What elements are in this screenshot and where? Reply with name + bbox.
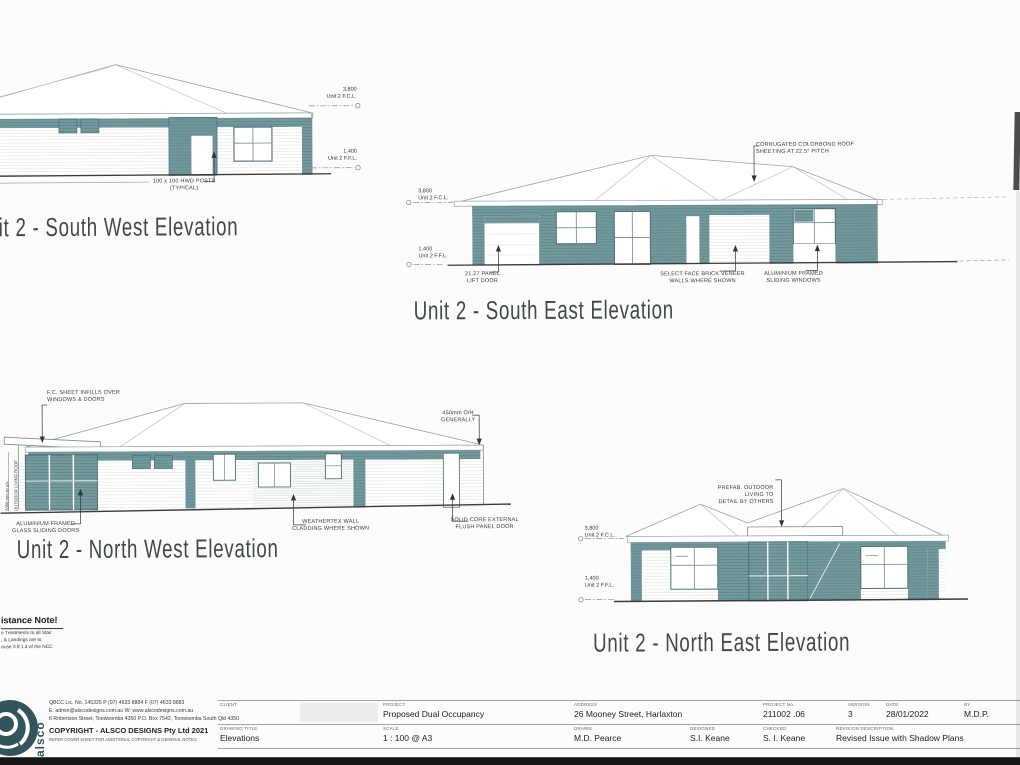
ne-ffl-level: 1,400 Unit 2 F.F.L. [585, 576, 614, 590]
slip-resistance-note: istance Note! e Treatments to all Stair … [0, 0, 1018, 2]
tb-designed-label: DESIGNED [690, 726, 715, 731]
nw-note-overhang: 450mm O/H GENERALLY [441, 410, 475, 424]
ne-note-prefab: PREFAB. OUTDOOR LIVING TO DETAIL BY OTHE… [698, 485, 773, 507]
se-note-brick: SELECT FACE BRICK VENEER WALLS WHERE SHO… [660, 271, 745, 286]
tb-revision-value: Revised Issue with Shadow Plans [836, 733, 964, 743]
title-block-mid-rule [218, 724, 1020, 725]
alsco-brand-text: alsco [33, 721, 47, 757]
tb-date-value: 28/01/2022 [886, 709, 929, 719]
tb-project-no-value: 211002 .06 [763, 709, 805, 719]
tb-version-value: 3 [848, 709, 853, 719]
slip-note-heading: istance Note! [1, 615, 58, 625]
logo-copyright: COPYRIGHT - ALSCO DESIGNS Pty Ltd 2021 [49, 726, 208, 735]
title-block-top-rule [218, 700, 1020, 701]
tb-drawn-value: M.D. Pearce [574, 733, 621, 743]
tb-date-label: DATE [886, 702, 898, 707]
sw-fcl-level: 3,800 Unit 2 F.C.L. [311, 87, 357, 101]
scan-edge-right [1013, 112, 1020, 190]
client-cell-shading [300, 703, 378, 722]
scan-edge-bottom [0, 757, 1020, 765]
se-ffl-level: 1,400 Unit 2 F.F.L. [418, 246, 447, 260]
se-note-roof: CORRUGATED COLORBOND ROOF SHEETING AT 22… [756, 141, 854, 156]
se-note-windows: ALUMINIUM FRAMED SLIDING WINDOWS [764, 271, 823, 286]
nw-dim-height: 2060 mm to u/s [4, 482, 9, 512]
tb-scale-label: SCALE [383, 726, 399, 731]
slip-note-line1: e Treatments to all Stair [1, 631, 52, 636]
scan-shadow-right [1016, 190, 1020, 757]
tb-checked-value: S. I. Keane [763, 733, 805, 743]
tb-project-no-label: PROJECT No. [763, 702, 794, 707]
se-note-lift-door: 21.27 PANEL LIFT DOOR [465, 271, 500, 285]
logo-copyright-note: REFER COVER SHEET FOR ADDITIONAL COPYRIG… [49, 737, 197, 742]
nw-note-infills: F.C. SHEET INFILLS OVER WINDOWS & DOORS [47, 390, 120, 405]
ne-fcl-level: 3,800 Unit 2 F.C.L. [585, 526, 615, 540]
nw-dim-label: OUTDOOR LIVING ROOF [13, 460, 18, 511]
tb-address-label: ADDRESS [574, 702, 597, 707]
tb-project-value: Proposed Dual Occupancy [383, 709, 484, 719]
logo-contact-line3: 6 Robertson Street, Toowoomba 4350 P.O. … [49, 716, 239, 722]
tb-scale-value: 1 : 100 @ A3 [383, 733, 432, 743]
tb-drawing-title-value: Elevations [220, 733, 259, 743]
nw-note-cladding: WEATHERTEX WALL CLADDING WHERE SHOWN [292, 519, 369, 534]
tb-checked-label: CHECKED [763, 726, 786, 731]
tb-client-label: CLIENT [220, 702, 237, 707]
slip-note-line3: ause 3.9.1.4 of the NCC [1, 645, 52, 650]
tb-project-label: PROJECT [383, 702, 405, 707]
tb-by-value: M.D.P. [964, 709, 989, 719]
slip-note-rule [1, 628, 63, 629]
sw-elevation-title: Unit 2 - South West Elevation [0, 211, 238, 243]
se-fcl-level: 3,800 Unit 2 F.C.L. [418, 188, 448, 202]
nw-note-panel-door: SOLID CORE EXTERNAL FLUSH PANEL DOOR [450, 517, 518, 532]
tb-by-label: BY [964, 702, 970, 707]
nw-elevation-title: Unit 2 - North West Elevation [17, 533, 279, 565]
ne-elevation-title: Unit 2 - North East Elevation [593, 627, 850, 659]
tb-address-value: 26 Mooney Street, Harlaxton [574, 709, 682, 719]
logo-contact-line1: QBCC Lic. No. 145325 P (07) 4633 8884 F … [49, 700, 184, 706]
title-block-bottom-rule [218, 748, 1020, 749]
drawing-sheet: 3,800 Unit 2 F.C.L. 1,400 Unit 2 F.F.L. … [0, 0, 1020, 765]
tb-drawing-title-label: DRAWING TITLE [220, 726, 258, 731]
tb-revision-label: REVISION DESCRIPTION [836, 726, 894, 731]
sw-note-posts: 100 x 100 HWD POSTS (TYPICAL) [153, 178, 216, 193]
tb-drawn-label: DRAWN [574, 726, 592, 731]
tb-designed-value: S.I. Keane [690, 733, 730, 743]
logo-contact-line2: E: admin@alscodesigns.com.au W: www.alsc… [49, 708, 193, 714]
tb-version-label: VERSION [848, 702, 870, 707]
se-elevation-title: Unit 2 - South East Elevation [414, 294, 674, 326]
elevation-drawings: 3,800 Unit 2 F.C.L. 1,400 Unit 2 F.F.L. … [0, 0, 1020, 765]
sw-ffl-level: 1,400 Unit 2 F.F.L. [311, 149, 357, 163]
slip-note-line2: , & Landings are to [1, 638, 41, 643]
